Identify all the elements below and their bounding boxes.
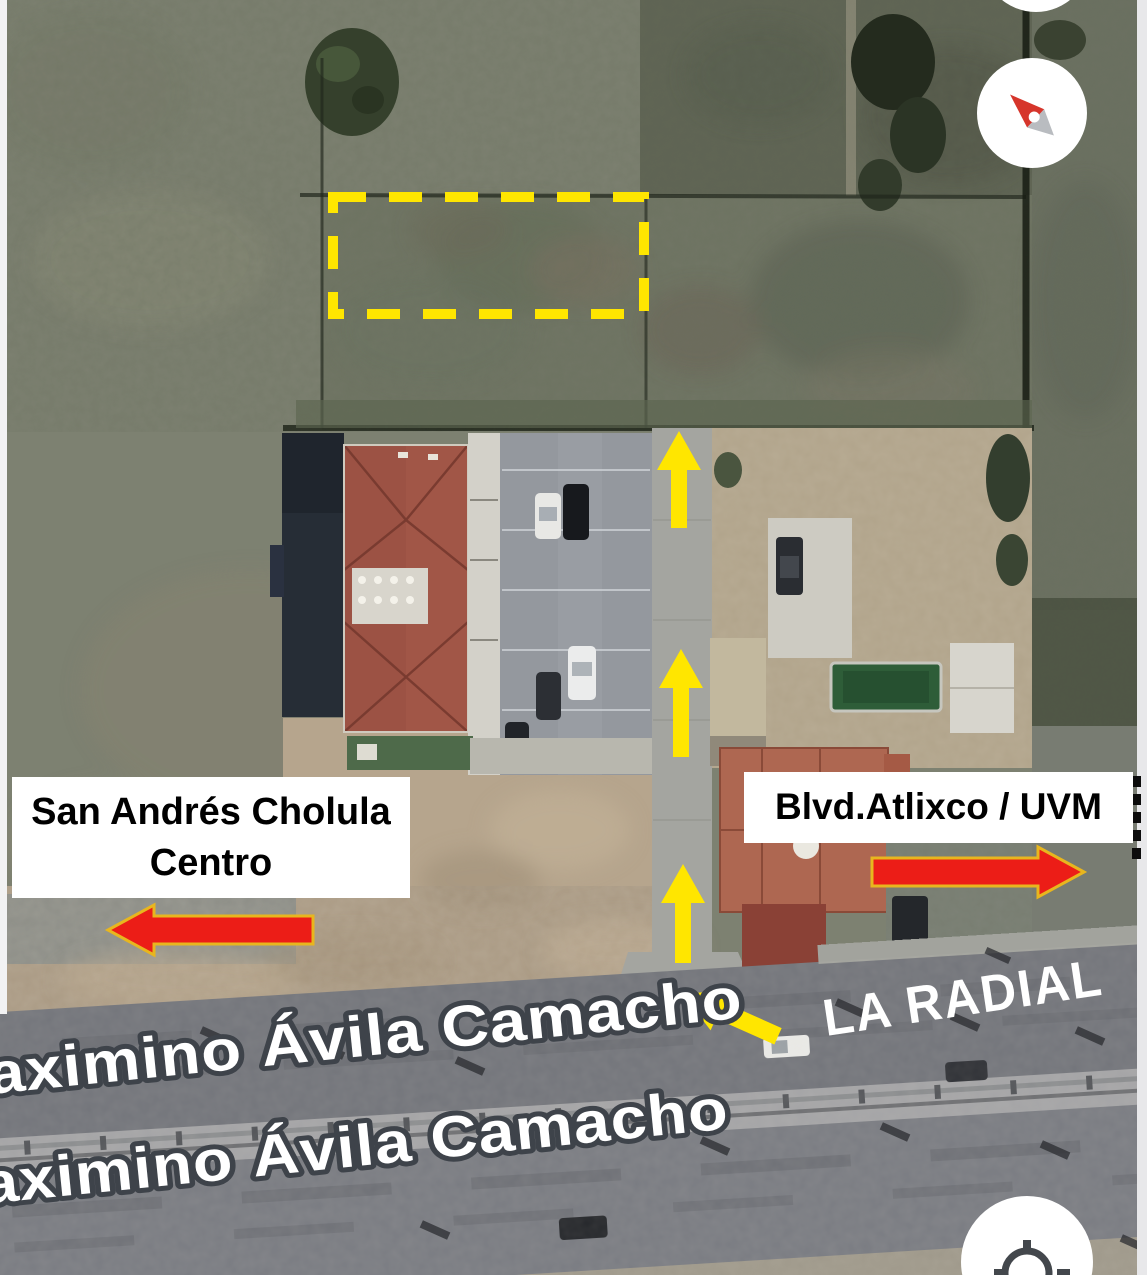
right-edge-strip <box>1137 0 1147 1275</box>
hedge <box>296 400 1032 428</box>
destination-label-text: Blvd.Atlixco / UVM <box>775 783 1102 832</box>
footpath <box>846 0 856 196</box>
satellite-map-view: aximino Ávila Camacho aximino Ávila Cama… <box>0 0 1147 1275</box>
map-canvas: aximino Ávila Camacho aximino Ávila Cama… <box>0 0 1147 1275</box>
compass-button[interactable] <box>977 58 1087 168</box>
destination-label-san-andres: San Andrés Cholula Centro <box>12 777 410 898</box>
destination-line-2: Centro <box>150 838 272 888</box>
destination-line-1: San Andrés Cholula <box>31 787 391 837</box>
left-edge-strip <box>0 0 7 1014</box>
destination-label-blvd-atlixco: Blvd.Atlixco / UVM <box>744 772 1133 843</box>
right-property <box>710 428 1032 984</box>
